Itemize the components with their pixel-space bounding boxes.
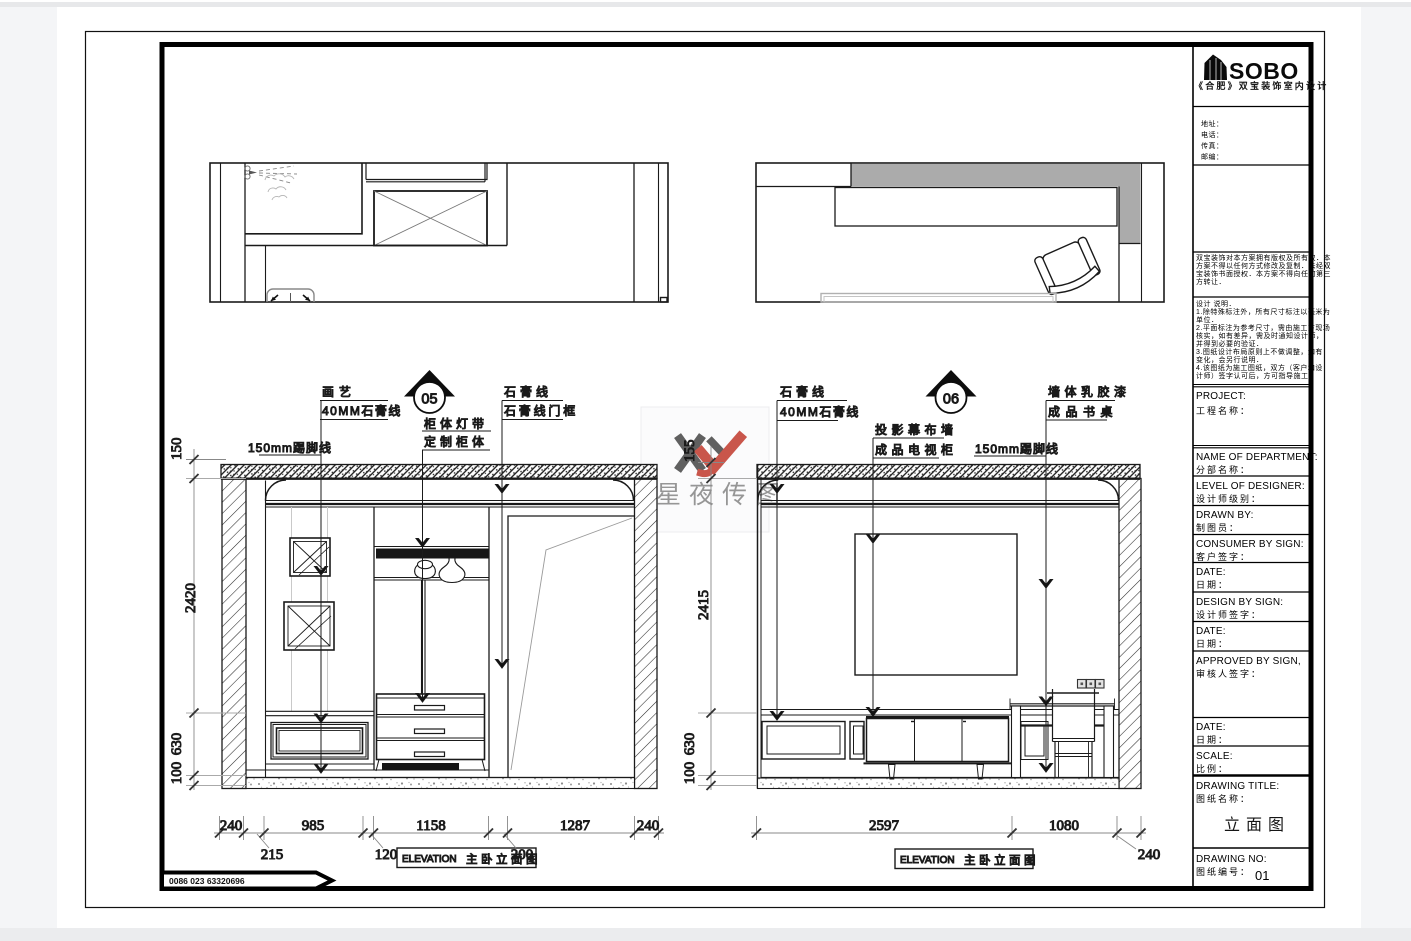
svg-text:06: 06 [943,392,959,408]
svg-text:投影幕布墙: 投影幕布墙 [875,422,958,437]
svg-text:PROJECT:: PROJECT: [1196,391,1246,402]
svg-text:1080: 1080 [1049,818,1079,834]
svg-text:DESIGN BY SIGN:: DESIGN BY SIGN: [1196,597,1283,608]
svg-text:1.除特殊标注外，所有尺寸标注以毫米为: 1.除特殊标注外，所有尺寸标注以毫米为 [1196,307,1330,316]
svg-text:分部名称：: 分部名称： [1196,464,1251,475]
svg-text:计师）签字认可后，方可指导施工．: 计师）签字认可后，方可指导施工． [1196,371,1316,380]
svg-text:设计师签字：: 设计师签字： [1196,609,1262,620]
svg-text:0086 023 63320696: 0086 023 63320696 [169,876,245,886]
svg-text:150mm踢脚线: 150mm踢脚线 [248,440,332,455]
svg-text:柜体灯带: 柜体灯带 [424,417,488,431]
svg-text:日期：: 日期： [1196,639,1229,649]
svg-text:DRAWN BY:: DRAWN BY: [1196,510,1254,521]
svg-text:DRAWING NO:: DRAWING NO: [1196,854,1267,865]
svg-text:方案不得以任何方式修改及复制．未经双: 方案不得以任何方式修改及复制．未经双 [1196,261,1331,270]
svg-text:主卧立面图: 主卧立面图 [964,853,1039,867]
svg-text:100: 100 [682,762,698,785]
svg-text:画艺: 画艺 [322,385,356,399]
svg-text:立面图: 立面图 [1224,816,1290,834]
svg-text:工程名称：: 工程名称： [1196,405,1251,416]
svg-text:240: 240 [1138,847,1161,863]
svg-text:985: 985 [302,818,325,834]
svg-text:核实，如有差异，需及时通知设计师，: 核实，如有差异，需及时通知设计师， [1196,331,1324,340]
svg-text:01: 01 [1255,868,1269,883]
svg-text:传真：: 传真： [1201,141,1224,150]
svg-text:设计 说明．: 设计 说明． [1196,299,1236,308]
svg-text:LEVEL OF DESIGNER:: LEVEL OF DESIGNER: [1196,481,1305,492]
svg-text:630: 630 [169,733,185,756]
svg-text:设计师级别：: 设计师级别： [1196,493,1262,504]
svg-text:05: 05 [421,392,437,408]
svg-text:日期：: 日期： [1196,735,1229,745]
svg-text:215: 215 [261,847,284,863]
svg-text:200: 200 [511,847,534,863]
svg-text:变化，会另行说明．: 变化，会另行说明． [1196,355,1264,364]
svg-text:DRAWING TITLE:: DRAWING TITLE: [1196,781,1279,792]
svg-text:2420: 2420 [183,583,199,613]
svg-text:155: 155 [682,440,698,463]
svg-text:4.该图纸为施工图纸，双方（客户和设: 4.该图纸为施工图纸，双方（客户和设 [1196,363,1323,372]
svg-text:APPROVED BY SIGN,: APPROVED BY SIGN, [1196,656,1301,667]
svg-text:电话：: 电话： [1201,130,1224,139]
svg-text:120: 120 [375,847,398,863]
svg-text:630: 630 [682,733,698,756]
svg-text:2597: 2597 [869,818,900,834]
svg-text:NAME OF DEPARTMENT:: NAME OF DEPARTMENT: [1196,452,1318,463]
svg-text:SCALE:: SCALE: [1196,751,1233,762]
svg-text:并得到必要的验证．: 并得到必要的验证． [1196,339,1264,348]
svg-text:150: 150 [169,438,185,461]
svg-text:成品书桌: 成品书桌 [1048,405,1118,419]
svg-text:邮编：: 邮编： [1201,152,1224,161]
svg-text:宝装饰书面授权．本方案不得向任何第三: 宝装饰书面授权．本方案不得向任何第三 [1196,269,1331,278]
svg-text:墙体乳胶漆: 墙体乳胶漆 [1048,384,1131,399]
svg-text:方转让．: 方转让． [1196,277,1226,286]
svg-text:1158: 1158 [416,818,445,834]
svg-text:40MM石膏线: 40MM石膏线 [322,403,402,418]
svg-text:石膏线: 石膏线 [780,384,828,399]
svg-text:40MM石膏线: 40MM石膏线 [780,404,860,419]
svg-text:定制柜体: 定制柜体 [424,434,488,449]
svg-text:单位．: 单位． [1196,315,1219,324]
svg-text:地址：: 地址： [1201,119,1224,128]
svg-text:240: 240 [637,818,660,834]
svg-text:ELEVATION: ELEVATION [402,854,457,865]
svg-text:石膏线: 石膏线 [504,384,552,399]
svg-text:3.图纸设计布局原则上不做调整，如有: 3.图纸设计布局原则上不做调整，如有 [1196,347,1323,356]
svg-text:《合肥》双宝装饰室内设计: 《合肥》双宝装饰室内设计 [1194,80,1328,91]
svg-text:成品电视柜: 成品电视柜 [875,442,958,457]
svg-text:图纸名称：: 图纸名称： [1196,793,1251,804]
svg-text:制图员：: 制图员： [1196,522,1240,533]
svg-text:DATE:: DATE: [1196,567,1226,578]
svg-text:客户签字：: 客户签字： [1196,551,1251,562]
svg-text:2415: 2415 [696,590,712,620]
svg-text:ELEVATION: ELEVATION [900,855,955,866]
svg-text:DATE:: DATE: [1196,722,1226,733]
svg-text:比例：: 比例： [1196,763,1229,774]
svg-text:240: 240 [220,818,243,834]
svg-text:双宝装饰对本方案拥有版权及所有权．本: 双宝装饰对本方案拥有版权及所有权．本 [1196,253,1331,262]
svg-text:1287: 1287 [560,818,591,834]
svg-text:DATE:: DATE: [1196,626,1226,637]
svg-text:100: 100 [169,762,185,785]
svg-text:图纸编号：: 图纸编号： [1196,866,1251,877]
svg-text:石膏线门框: 石膏线门框 [504,403,578,418]
svg-text:CONSUMER BY SIGN:: CONSUMER BY SIGN: [1196,539,1304,550]
svg-text:日期：: 日期： [1196,580,1229,590]
svg-text:2.平面标注为参考尺寸，需由施工方现场: 2.平面标注为参考尺寸，需由施工方现场 [1196,323,1330,332]
svg-text:审核人签字：: 审核人签字： [1196,668,1262,679]
svg-text:150mm踢脚线: 150mm踢脚线 [975,441,1059,456]
